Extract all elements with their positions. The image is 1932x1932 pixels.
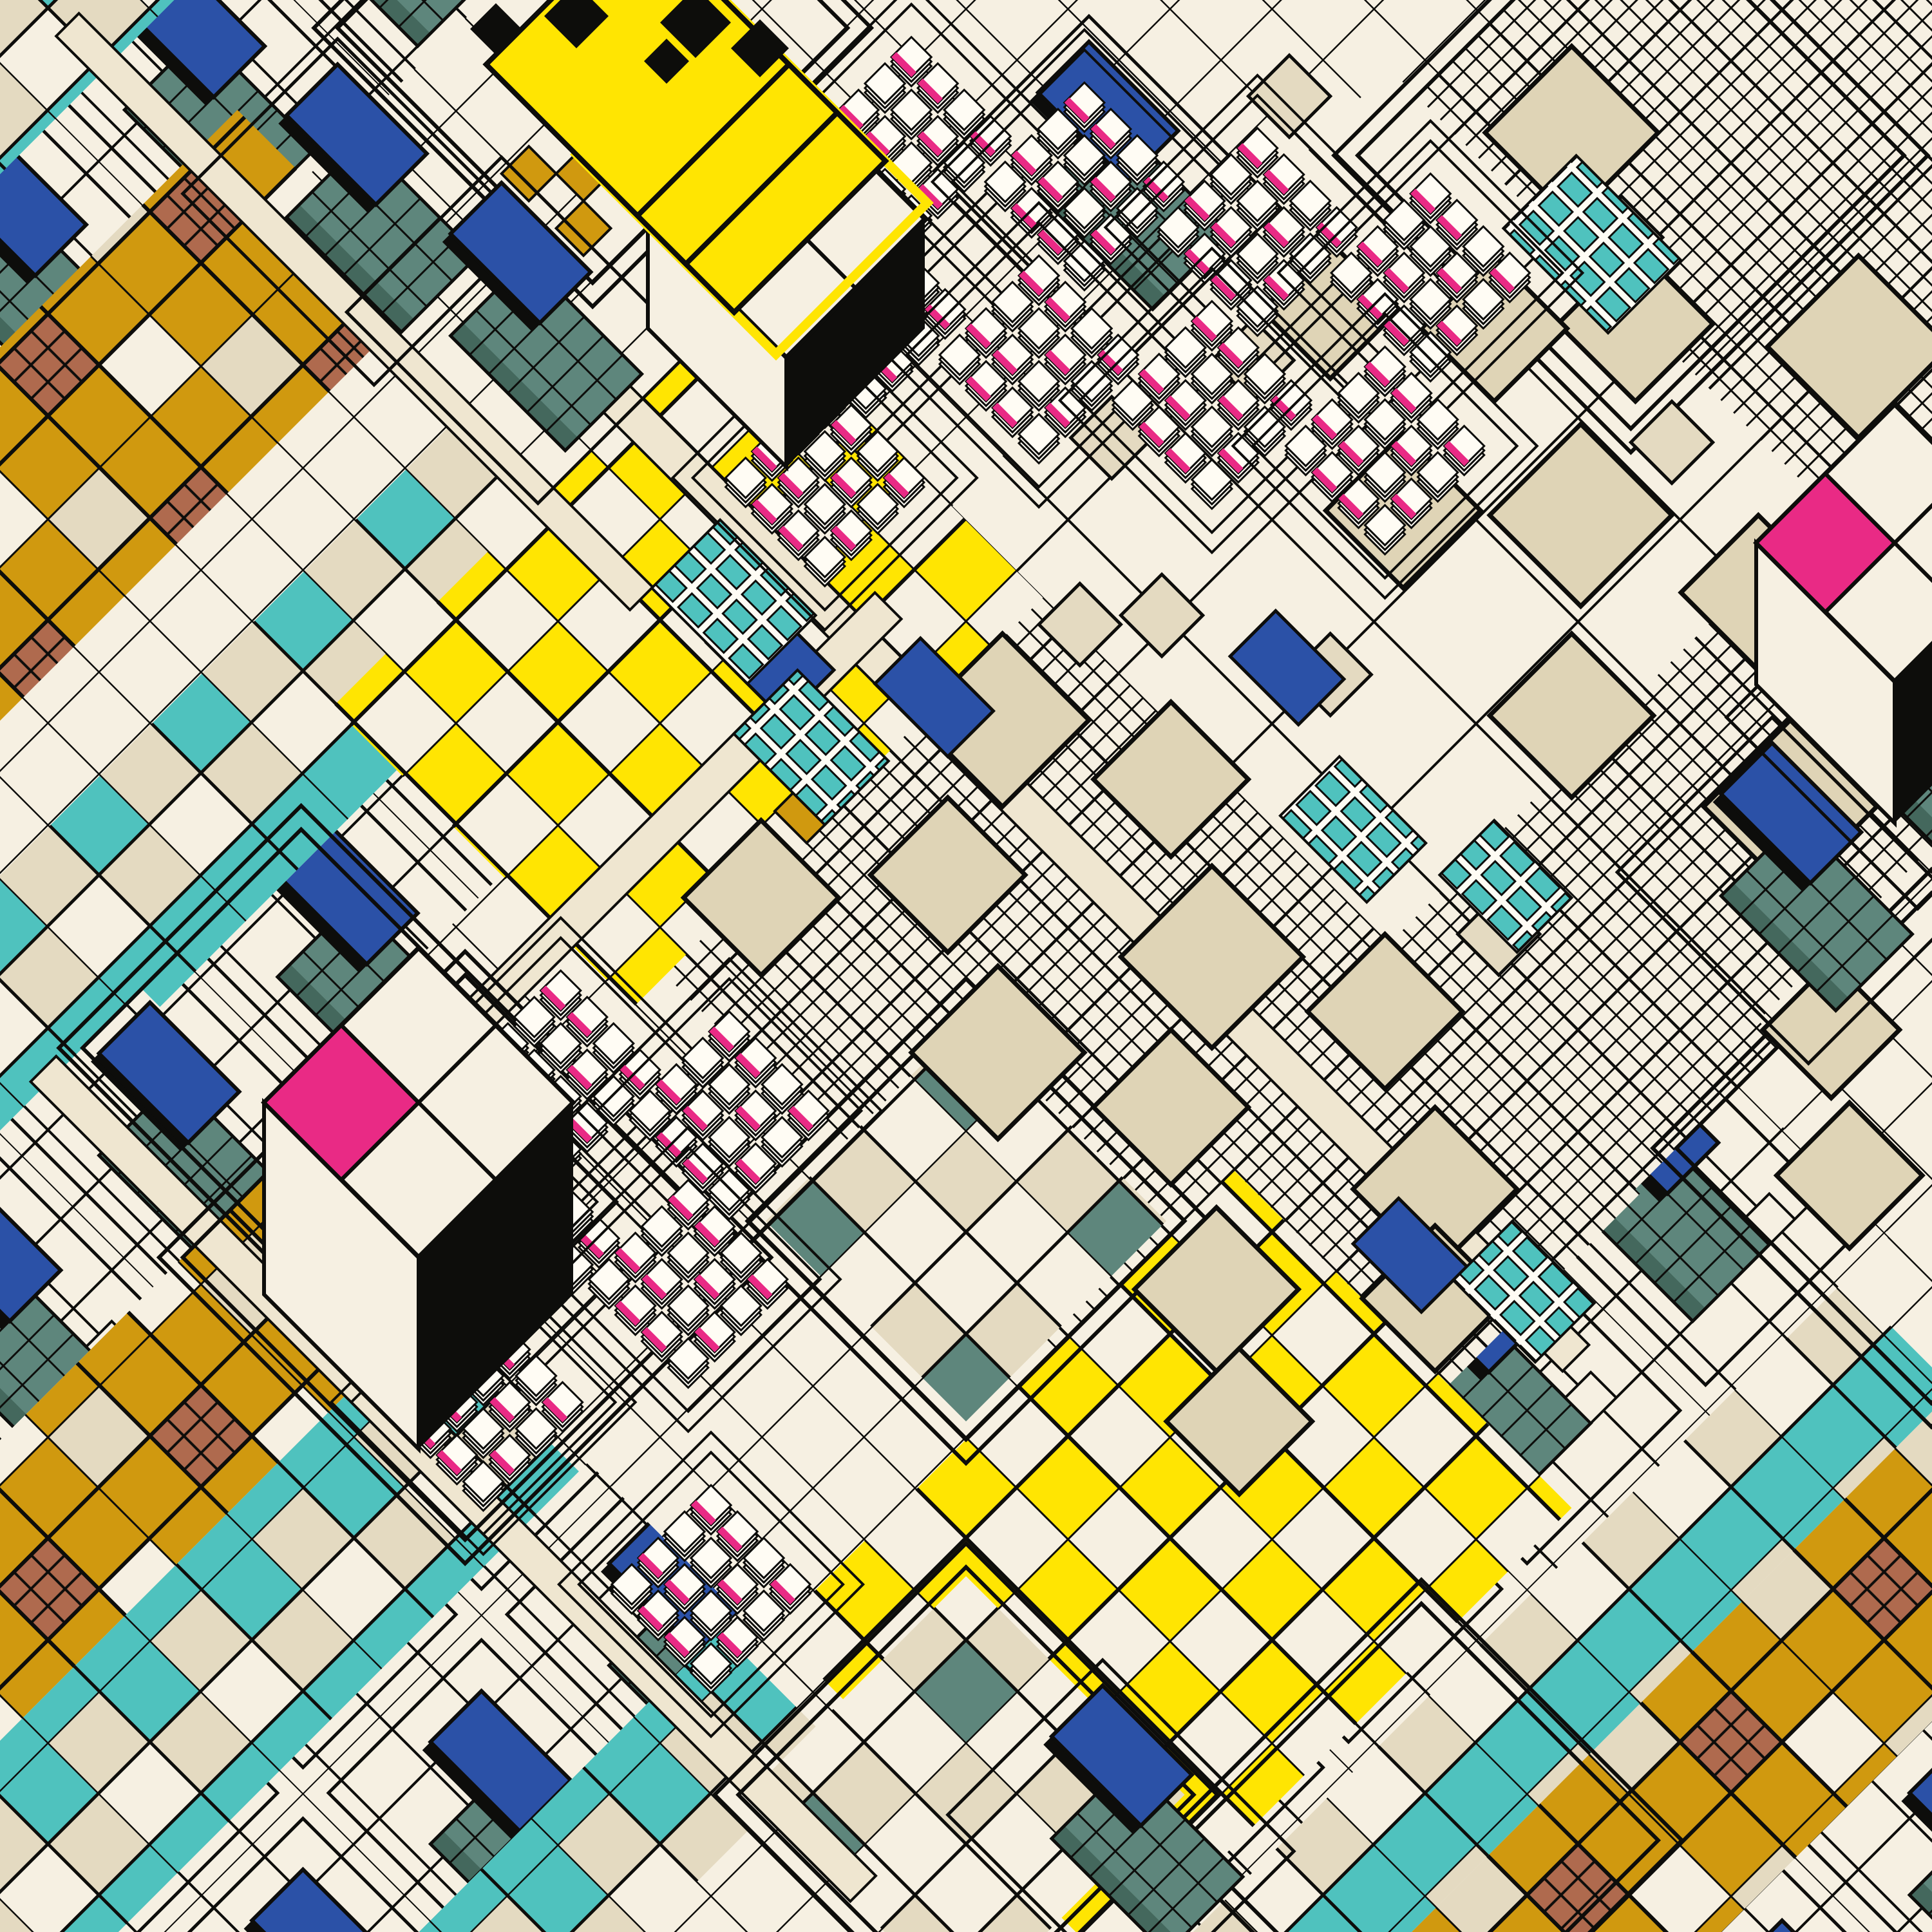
artwork-frame — [0, 0, 1932, 1932]
isometric-artwork-canvas — [0, 0, 1932, 1932]
rotated-grid-layer — [0, 0, 1932, 1932]
